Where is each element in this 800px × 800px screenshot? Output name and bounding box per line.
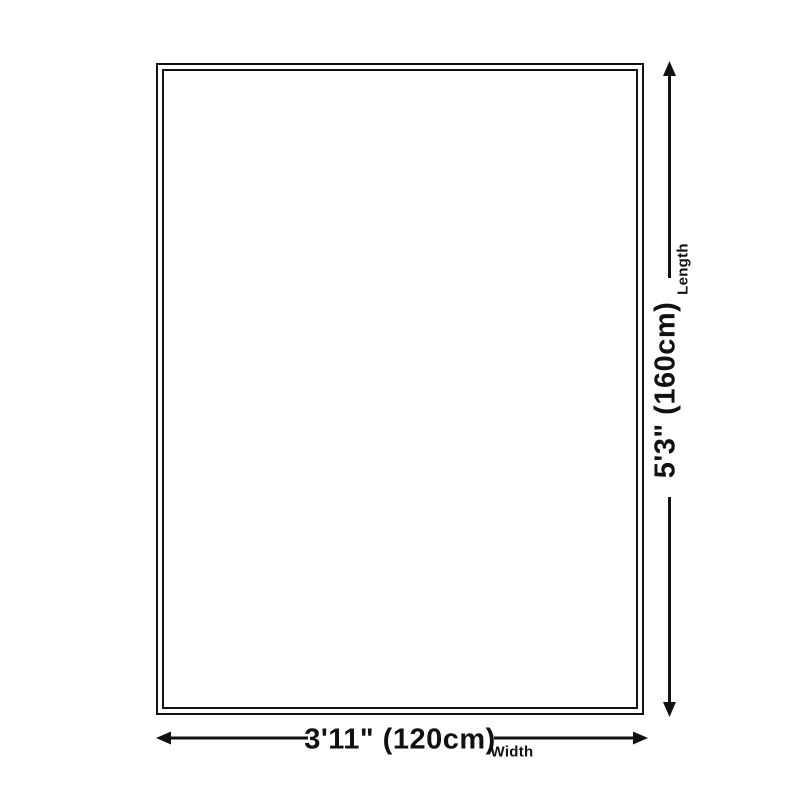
length-label: Length (675, 243, 692, 295)
arrow-down-icon (663, 702, 676, 717)
product-dimension-diagram: 5'3" (160cm) Length 3'11" (120cm) Width (0, 0, 800, 800)
width-label: Width (490, 744, 533, 761)
width-value: 3'11" (120cm) (304, 724, 496, 757)
arrow-left-icon (156, 732, 171, 745)
arrow-up-icon (663, 61, 676, 76)
arrow-right-icon (633, 732, 648, 745)
length-value: 5'3" (160cm) (650, 302, 683, 479)
